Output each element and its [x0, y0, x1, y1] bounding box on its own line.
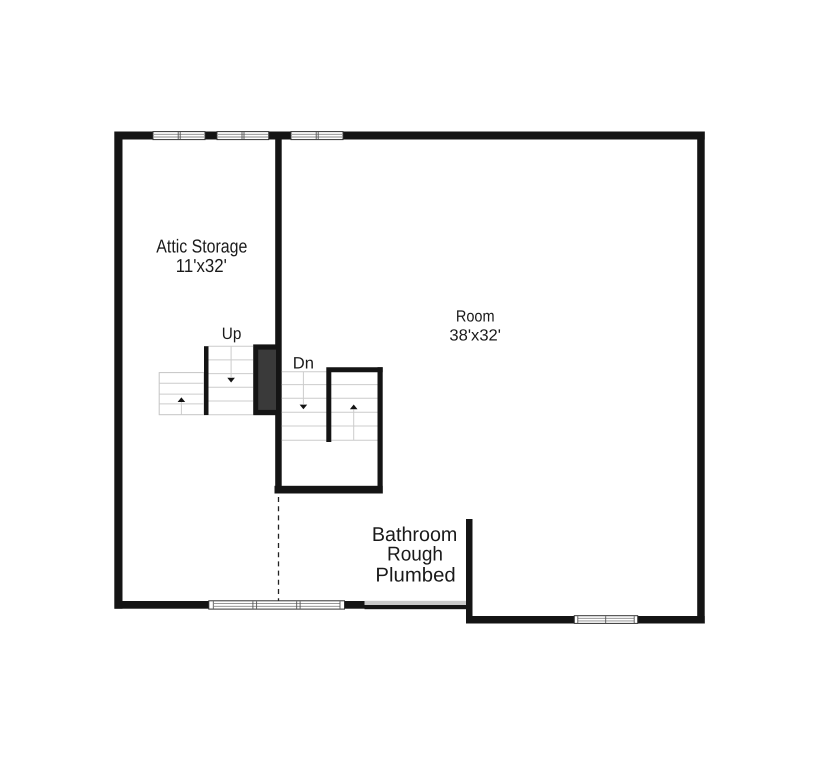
svg-text:Rough: Rough: [387, 544, 443, 566]
svg-text:Up: Up: [222, 325, 242, 343]
svg-text:38'x32': 38'x32': [449, 327, 501, 345]
svg-text:Dn: Dn: [293, 354, 314, 372]
svg-text:Bathroom: Bathroom: [372, 524, 458, 546]
svg-text:Plumbed: Plumbed: [375, 564, 455, 586]
svg-text:Attic Storage: Attic Storage: [156, 236, 247, 257]
svg-text:Room: Room: [456, 308, 495, 326]
svg-text:11'x32': 11'x32': [176, 255, 227, 276]
